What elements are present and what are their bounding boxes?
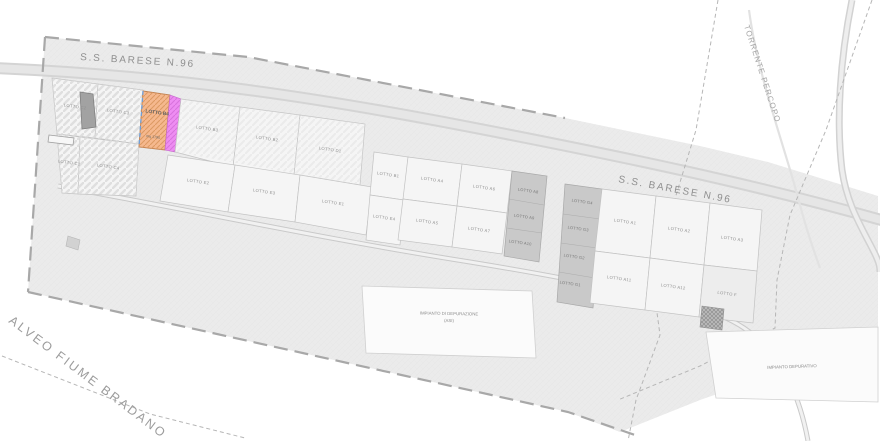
block-c (48, 78, 143, 196)
site-plan-page: S.S. BARESE N.96 S.S. BARESE N.96 TORREN… (0, 0, 880, 441)
building-dark (80, 92, 96, 129)
highlighted-lot-b4 (139, 91, 181, 152)
stream-label: TORRENTE PERCOPO (742, 24, 782, 124)
utility-building-hatch (700, 306, 724, 330)
river-label: ALVEO FIUME BRADANO (6, 313, 169, 441)
lot-b4-hatch (139, 91, 170, 150)
treatment-plant-label-line1: IMPIANTO DI DEPURAZIONE (420, 310, 479, 316)
treatment-plant-label-line2: (ASI) (444, 318, 454, 323)
site-plan-map: S.S. BARESE N.96 S.S. BARESE N.96 TORREN… (0, 0, 880, 441)
